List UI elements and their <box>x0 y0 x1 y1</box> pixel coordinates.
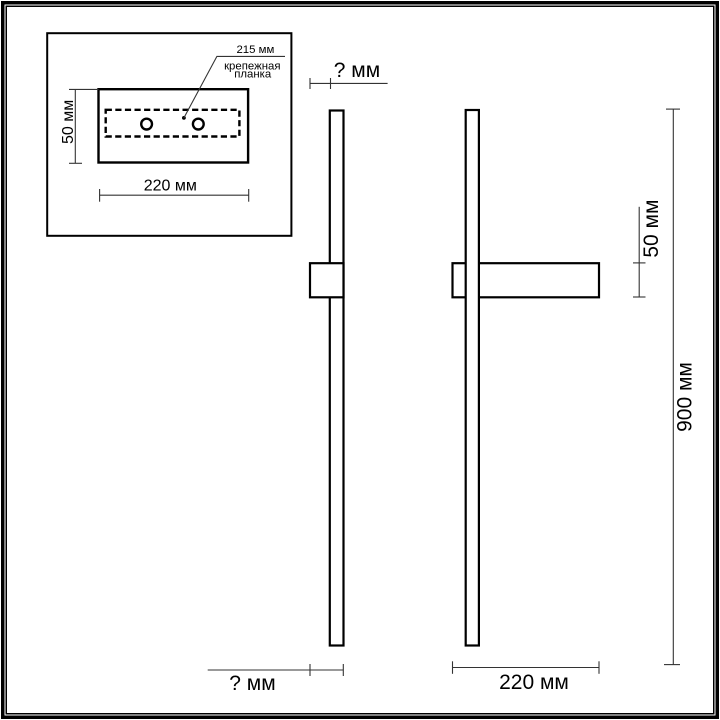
svg-text:? мм: ? мм <box>334 59 380 82</box>
svg-text:50 мм: 50 мм <box>60 100 77 144</box>
svg-text:220 мм: 220 мм <box>499 671 569 694</box>
svg-text:50 мм: 50 мм <box>640 200 663 258</box>
svg-text:900 мм: 900 мм <box>674 362 697 432</box>
svg-text:планка: планка <box>234 69 272 81</box>
svg-text:220 мм: 220 мм <box>144 178 197 195</box>
svg-text:? мм: ? мм <box>229 672 275 695</box>
svg-text:215 мм: 215 мм <box>236 44 274 56</box>
